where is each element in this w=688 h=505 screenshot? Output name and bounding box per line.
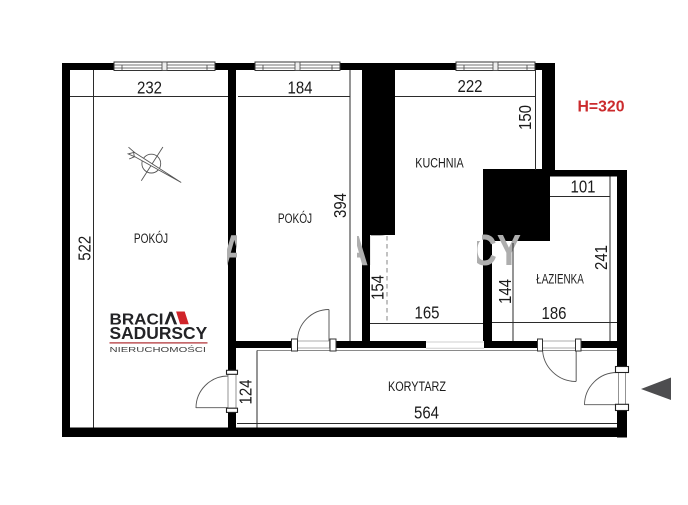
svg-text:SADURSCY: SADURSCY	[110, 323, 208, 343]
svg-text:101: 101	[571, 177, 596, 197]
svg-text:124: 124	[236, 379, 256, 404]
svg-text:144: 144	[495, 279, 515, 304]
svg-text:H=320: H=320	[578, 99, 625, 116]
svg-text:NIERUCHOMOŚCI: NIERUCHOMOŚCI	[110, 345, 207, 354]
svg-text:POKÓJ: POKÓJ	[134, 230, 168, 247]
svg-text:POKÓJ: POKÓJ	[278, 210, 312, 227]
svg-text:186: 186	[542, 303, 567, 323]
svg-text:241: 241	[591, 245, 611, 270]
svg-text:165: 165	[415, 303, 440, 323]
svg-text:394: 394	[330, 193, 350, 218]
svg-text:232: 232	[137, 77, 162, 97]
svg-text:222: 222	[458, 76, 483, 96]
svg-text:ŁAZIENKA: ŁAZIENKA	[536, 272, 584, 288]
svg-text:564: 564	[414, 402, 439, 422]
svg-text:KORYTARZ: KORYTARZ	[388, 379, 446, 395]
svg-text:184: 184	[288, 77, 313, 97]
svg-text:522: 522	[75, 236, 95, 261]
svg-text:KUCHNIA: KUCHNIA	[415, 156, 464, 172]
svg-text:154: 154	[368, 275, 388, 300]
svg-text:150: 150	[515, 105, 535, 130]
